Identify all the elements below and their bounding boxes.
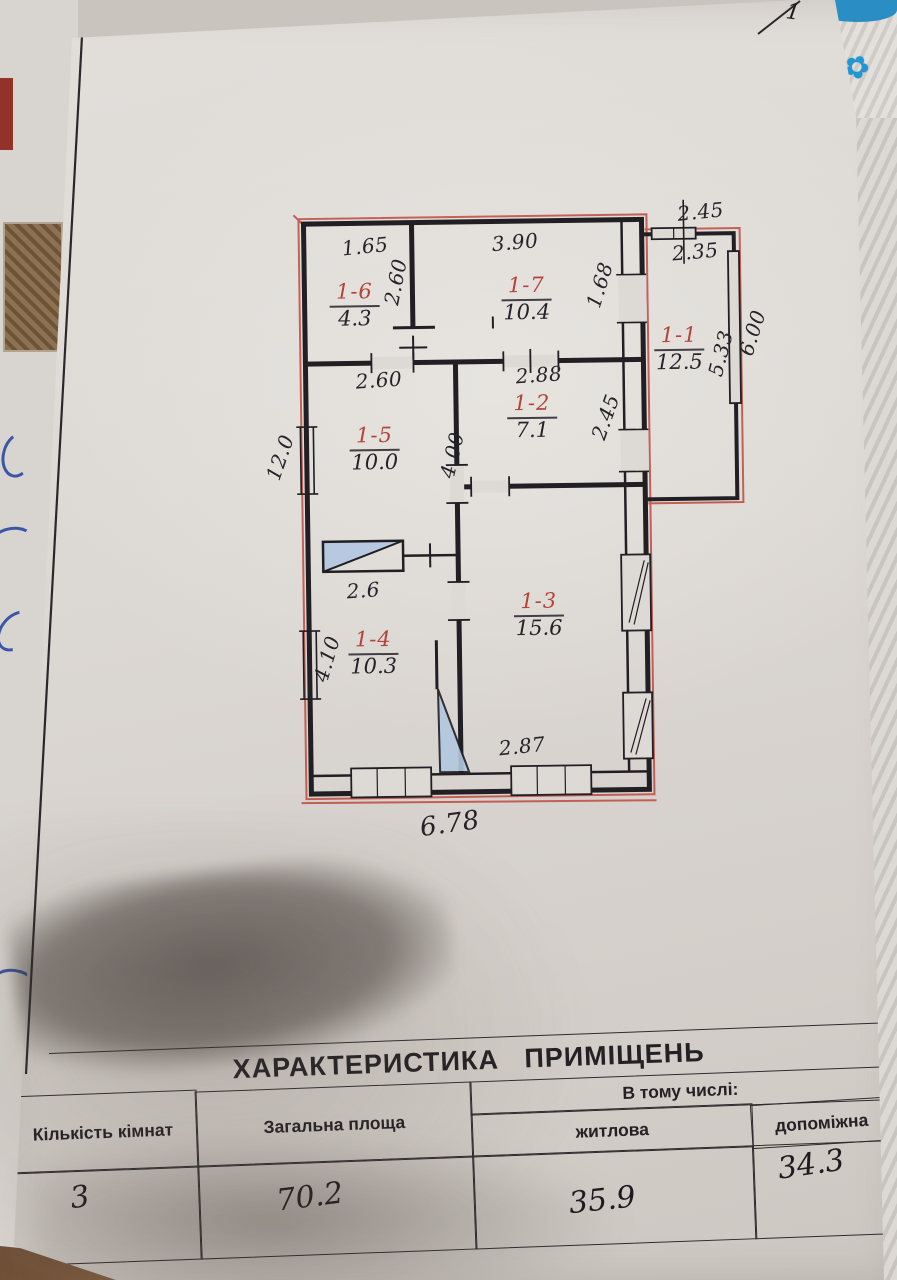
characteristics-table: ХАРАКТЕРИСТИКА ПРИМІЩЕНЬ Кількість кімна… <box>3 1022 896 1272</box>
room-label-1-3: 1-3 15.6 <box>507 589 572 640</box>
room-label-1-6: 1-6 4.3 <box>324 280 385 331</box>
entry-triangle <box>438 689 469 772</box>
dim-label: 1.65 <box>341 232 390 261</box>
pen-scribble <box>0 523 37 563</box>
dim-label: 2.60 <box>355 367 403 394</box>
header-room-count: Кількість кімнат <box>7 1090 200 1175</box>
dim-label: 2.45 <box>676 197 725 226</box>
pen-scribble <box>0 429 39 482</box>
stove <box>323 541 403 572</box>
woven-object <box>3 222 63 352</box>
pen-scribble <box>0 603 43 659</box>
room-label-1-1: 1-1 12.5 <box>647 323 712 374</box>
photo-of-floor-plan-document: ❀ ✿ ❁ 1 <box>0 0 897 1280</box>
room-number: 1-5 <box>349 424 400 451</box>
room-area: 10.3 <box>350 653 397 678</box>
room-number: 1-4 <box>348 628 399 655</box>
dim-label: 2.35 <box>671 238 719 266</box>
red-object-edge <box>0 78 13 150</box>
room-number: 1-6 <box>329 280 380 307</box>
dim-label: 2.6 <box>346 577 381 603</box>
room-number: 1-2 <box>506 392 557 419</box>
room-area: 12.5 <box>656 349 703 374</box>
dim-label: 2.88 <box>515 361 563 388</box>
room-label-1-4: 1-4 10.3 <box>341 628 406 679</box>
value-living-area: 35.9 <box>567 1179 637 1221</box>
room-number: 1-7 <box>501 274 552 301</box>
room-label-1-7: 1-7 10.4 <box>494 274 559 325</box>
room-area: 4.3 <box>338 306 372 330</box>
room-area: 15.6 <box>516 615 563 640</box>
room-area: 10.4 <box>503 299 550 324</box>
room-area: 7.1 <box>516 417 550 441</box>
floor-plan: 1.65 2.60 3.90 1.68 2.45 2.35 5.33 6.00 … <box>253 192 803 899</box>
room-area: 10.0 <box>351 449 398 474</box>
dim-label: 3.90 <box>491 228 539 256</box>
paper-sheet: 1 <box>0 0 897 1280</box>
dim-label: 2.87 <box>498 732 547 761</box>
header-total-area: Загальна площа <box>195 1082 475 1168</box>
room-number: 1-1 <box>653 324 704 351</box>
room-label-1-5: 1-5 10.0 <box>342 424 407 475</box>
value-cell-rooms <box>9 1166 202 1267</box>
room-label-1-2: 1-2 7.1 <box>502 392 563 443</box>
room-number: 1-3 <box>513 590 564 617</box>
